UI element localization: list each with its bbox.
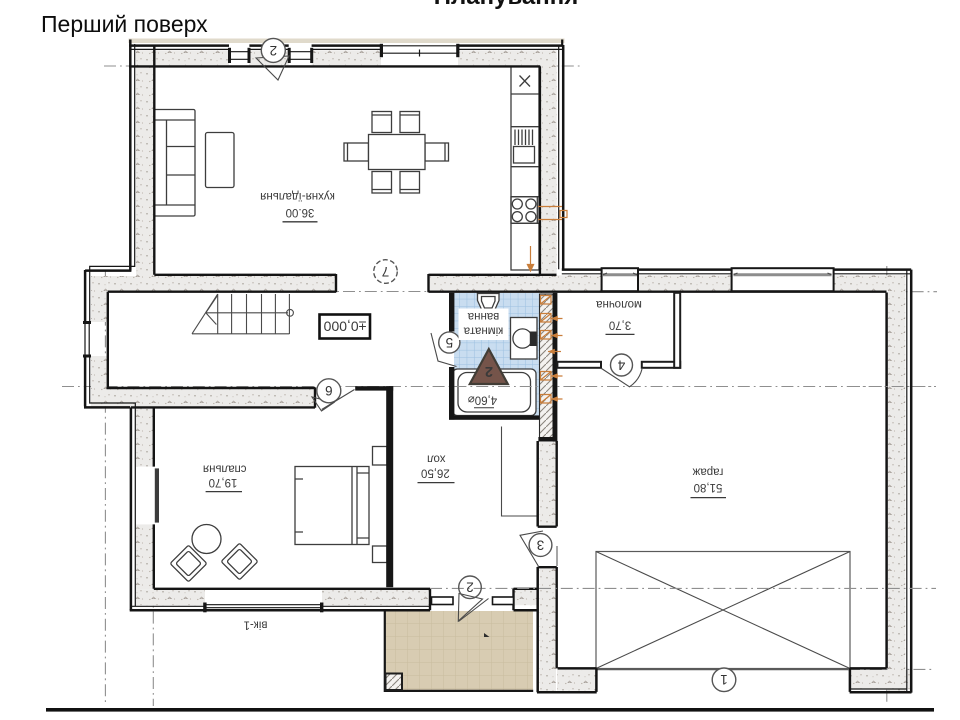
- svg-text:2: 2: [270, 43, 278, 58]
- svg-text:51,80: 51,80: [694, 481, 723, 493]
- svg-text:ванна: ванна: [467, 310, 499, 322]
- svg-text:±0,000: ±0,000: [323, 318, 366, 334]
- svg-text:молочна: молочна: [596, 298, 642, 310]
- svg-text:4,60⌀: 4,60⌀: [468, 394, 497, 406]
- svg-text:вік-1: вік-1: [244, 619, 268, 631]
- svg-text:кухня-їдальня: кухня-їдальня: [260, 190, 335, 202]
- svg-text:4: 4: [617, 357, 625, 372]
- svg-text:гараж: гараж: [692, 466, 723, 478]
- svg-text:36.00: 36.00: [286, 206, 315, 218]
- svg-text:спальня: спальня: [203, 463, 247, 475]
- svg-text:6: 6: [325, 383, 333, 398]
- svg-text:1: 1: [720, 672, 728, 687]
- svg-text:19,70: 19,70: [209, 476, 238, 488]
- svg-text:3,70: 3,70: [609, 318, 631, 330]
- svg-text:3: 3: [537, 537, 545, 552]
- svg-text:кімната: кімната: [463, 324, 503, 336]
- svg-text:7: 7: [382, 264, 390, 279]
- svg-text:2: 2: [485, 363, 493, 379]
- svg-text:5: 5: [446, 335, 454, 350]
- svg-text:хол: хол: [427, 453, 445, 465]
- svg-text:26,50: 26,50: [421, 466, 450, 478]
- svg-text:2: 2: [466, 580, 474, 595]
